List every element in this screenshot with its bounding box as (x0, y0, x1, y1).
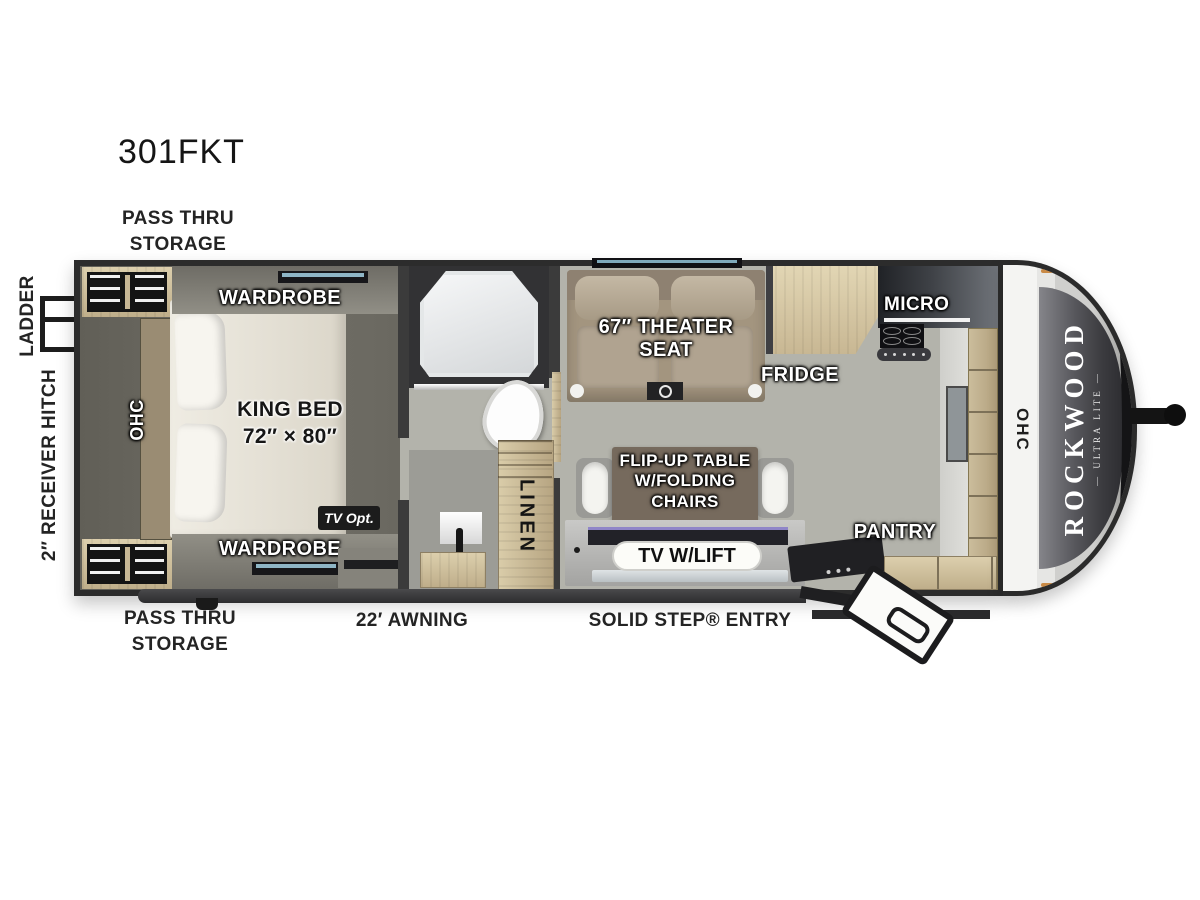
bedroom-skylight-window (278, 271, 368, 283)
page-title: 301FKT (118, 133, 245, 172)
fridge (766, 266, 878, 354)
hitch-coupler (1164, 404, 1186, 426)
wardrobe-top-label: WARDROBE (190, 287, 370, 310)
living-window (592, 258, 742, 268)
folding-chair (576, 458, 614, 518)
bedroom-window-bottom (252, 562, 340, 575)
front-cap-edge (1076, 279, 1137, 579)
step-handle-slot (884, 604, 933, 646)
range-cooktop (880, 324, 924, 348)
shelf-column (90, 275, 120, 309)
tv-panel (592, 570, 788, 582)
marker-light (1041, 583, 1053, 587)
theater-seat-label: 67″ THEATER SEAT (567, 316, 765, 362)
fridge-label: FRIDGE (745, 364, 855, 387)
ladder-label: LADDER (15, 271, 35, 361)
floorplan-page: 301FKT PASS THRU STORAGE LADDER 2″ RECEI… (0, 0, 1200, 900)
vanity-base-cabinet (420, 552, 486, 588)
ladder-icon (40, 296, 75, 352)
theater-seat: 67″ THEATER SEAT (567, 270, 765, 402)
tv-opt-badge: TV Opt. (318, 506, 380, 530)
range-grate (877, 348, 931, 361)
pass-thru-storage-top-label: PASS THRU STORAGE (98, 206, 258, 257)
front-cabinet-column (968, 328, 998, 590)
burner (903, 337, 921, 345)
tv-lift-badge: TV W/LIFT (612, 541, 762, 571)
shelf-column (90, 547, 120, 581)
shower-pan (420, 271, 538, 377)
front-window (946, 386, 968, 462)
pass-thru-storage-bottom-label: PASS THRU STORAGE (100, 606, 260, 657)
cupholder (570, 384, 584, 398)
folding-chair (756, 458, 794, 518)
micro-shelf (884, 318, 970, 322)
cabinet-screw (574, 547, 580, 553)
console-dial (659, 385, 672, 398)
ladder-rung (45, 317, 75, 322)
ohc-front-label: OHC (1012, 408, 1032, 452)
awning-rail (138, 589, 806, 603)
bathroom-wall (398, 500, 409, 590)
pass-thru-storage-unit-top (82, 267, 172, 317)
burner (903, 327, 921, 335)
window-glass (256, 564, 336, 568)
pass-thru-storage-unit-bottom (82, 539, 172, 589)
shelf-divider (125, 275, 130, 309)
flip-up-table: FLIP-UP TABLE W/FOLDING CHAIRS (612, 447, 758, 523)
shelf-column (135, 275, 165, 309)
solid-step-entry-label: SOLID STEP® ENTRY (585, 608, 795, 634)
linen-shelf-lines (498, 440, 552, 480)
awning-label: 22′ AWNING (327, 608, 497, 634)
burner (883, 337, 901, 345)
marker-light (1041, 269, 1053, 273)
theater-headrest (671, 276, 755, 320)
bathroom-wall (549, 266, 560, 378)
linen-label: LINEN (515, 479, 538, 554)
window-glass (282, 273, 364, 277)
king-bed-label: KING BED 72″ × 80″ (200, 396, 380, 451)
shelf-divider (125, 547, 130, 581)
theater-headrest (575, 276, 659, 320)
theater-console (647, 382, 683, 400)
ohc-bedroom-label: OHC (127, 390, 147, 450)
bathroom-wall (398, 266, 409, 438)
burner (883, 327, 901, 335)
flip-up-table-label: FLIP-UP TABLE W/FOLDING CHAIRS (612, 451, 758, 512)
shelf-column (135, 547, 165, 581)
micro-label: MICRO (884, 294, 984, 316)
pantry-label: PANTRY (840, 521, 950, 544)
window-glass (597, 260, 737, 263)
receiver-hitch-label: 2″ RECEIVER HITCH (37, 365, 57, 565)
